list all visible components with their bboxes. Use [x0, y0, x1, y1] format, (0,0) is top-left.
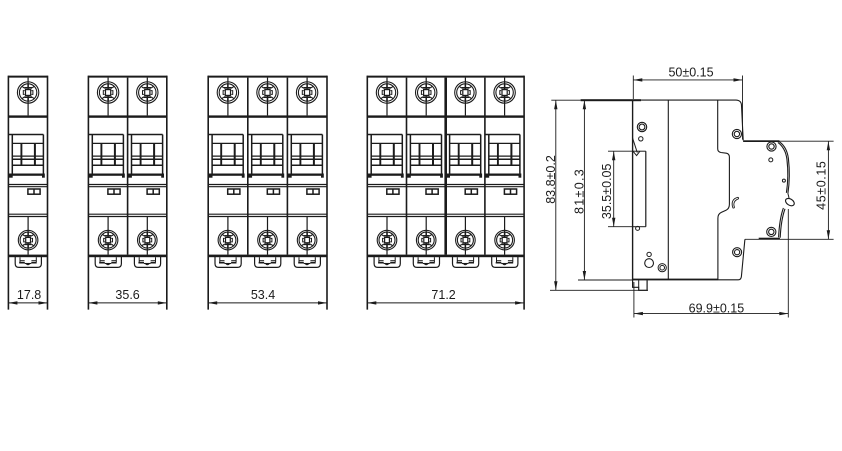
- svg-text:81±0.3: 81±0.3: [573, 168, 587, 214]
- svg-text:50±0.15: 50±0.15: [668, 65, 713, 79]
- svg-text:69.9±0.15: 69.9±0.15: [689, 301, 745, 315]
- svg-text:71.2: 71.2: [431, 288, 455, 302]
- svg-text:35.6: 35.6: [115, 288, 139, 302]
- svg-text:35.5±0.05: 35.5±0.05: [600, 163, 614, 219]
- svg-text:45±0.15: 45±0.15: [815, 161, 829, 210]
- svg-text:53.4: 53.4: [251, 288, 275, 302]
- svg-text:17.8: 17.8: [17, 288, 41, 302]
- svg-text:83.8±0.2: 83.8±0.2: [544, 155, 558, 204]
